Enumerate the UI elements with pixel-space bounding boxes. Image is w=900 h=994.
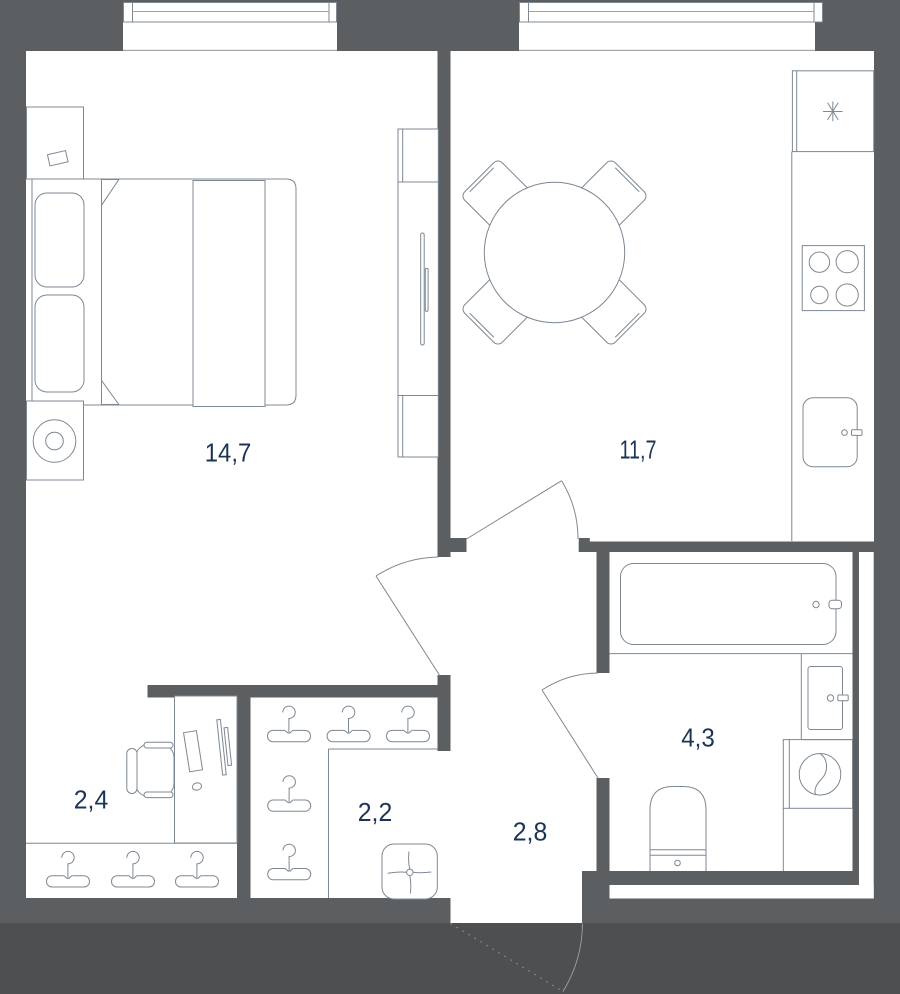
svg-text:2,4: 2,4 xyxy=(74,786,109,814)
svg-text:2,8: 2,8 xyxy=(513,818,548,846)
svg-text:4,3: 4,3 xyxy=(681,724,715,752)
svg-text:11,7: 11,7 xyxy=(620,437,657,465)
svg-text:14,7: 14,7 xyxy=(205,439,252,467)
svg-text:2,2: 2,2 xyxy=(358,799,393,827)
